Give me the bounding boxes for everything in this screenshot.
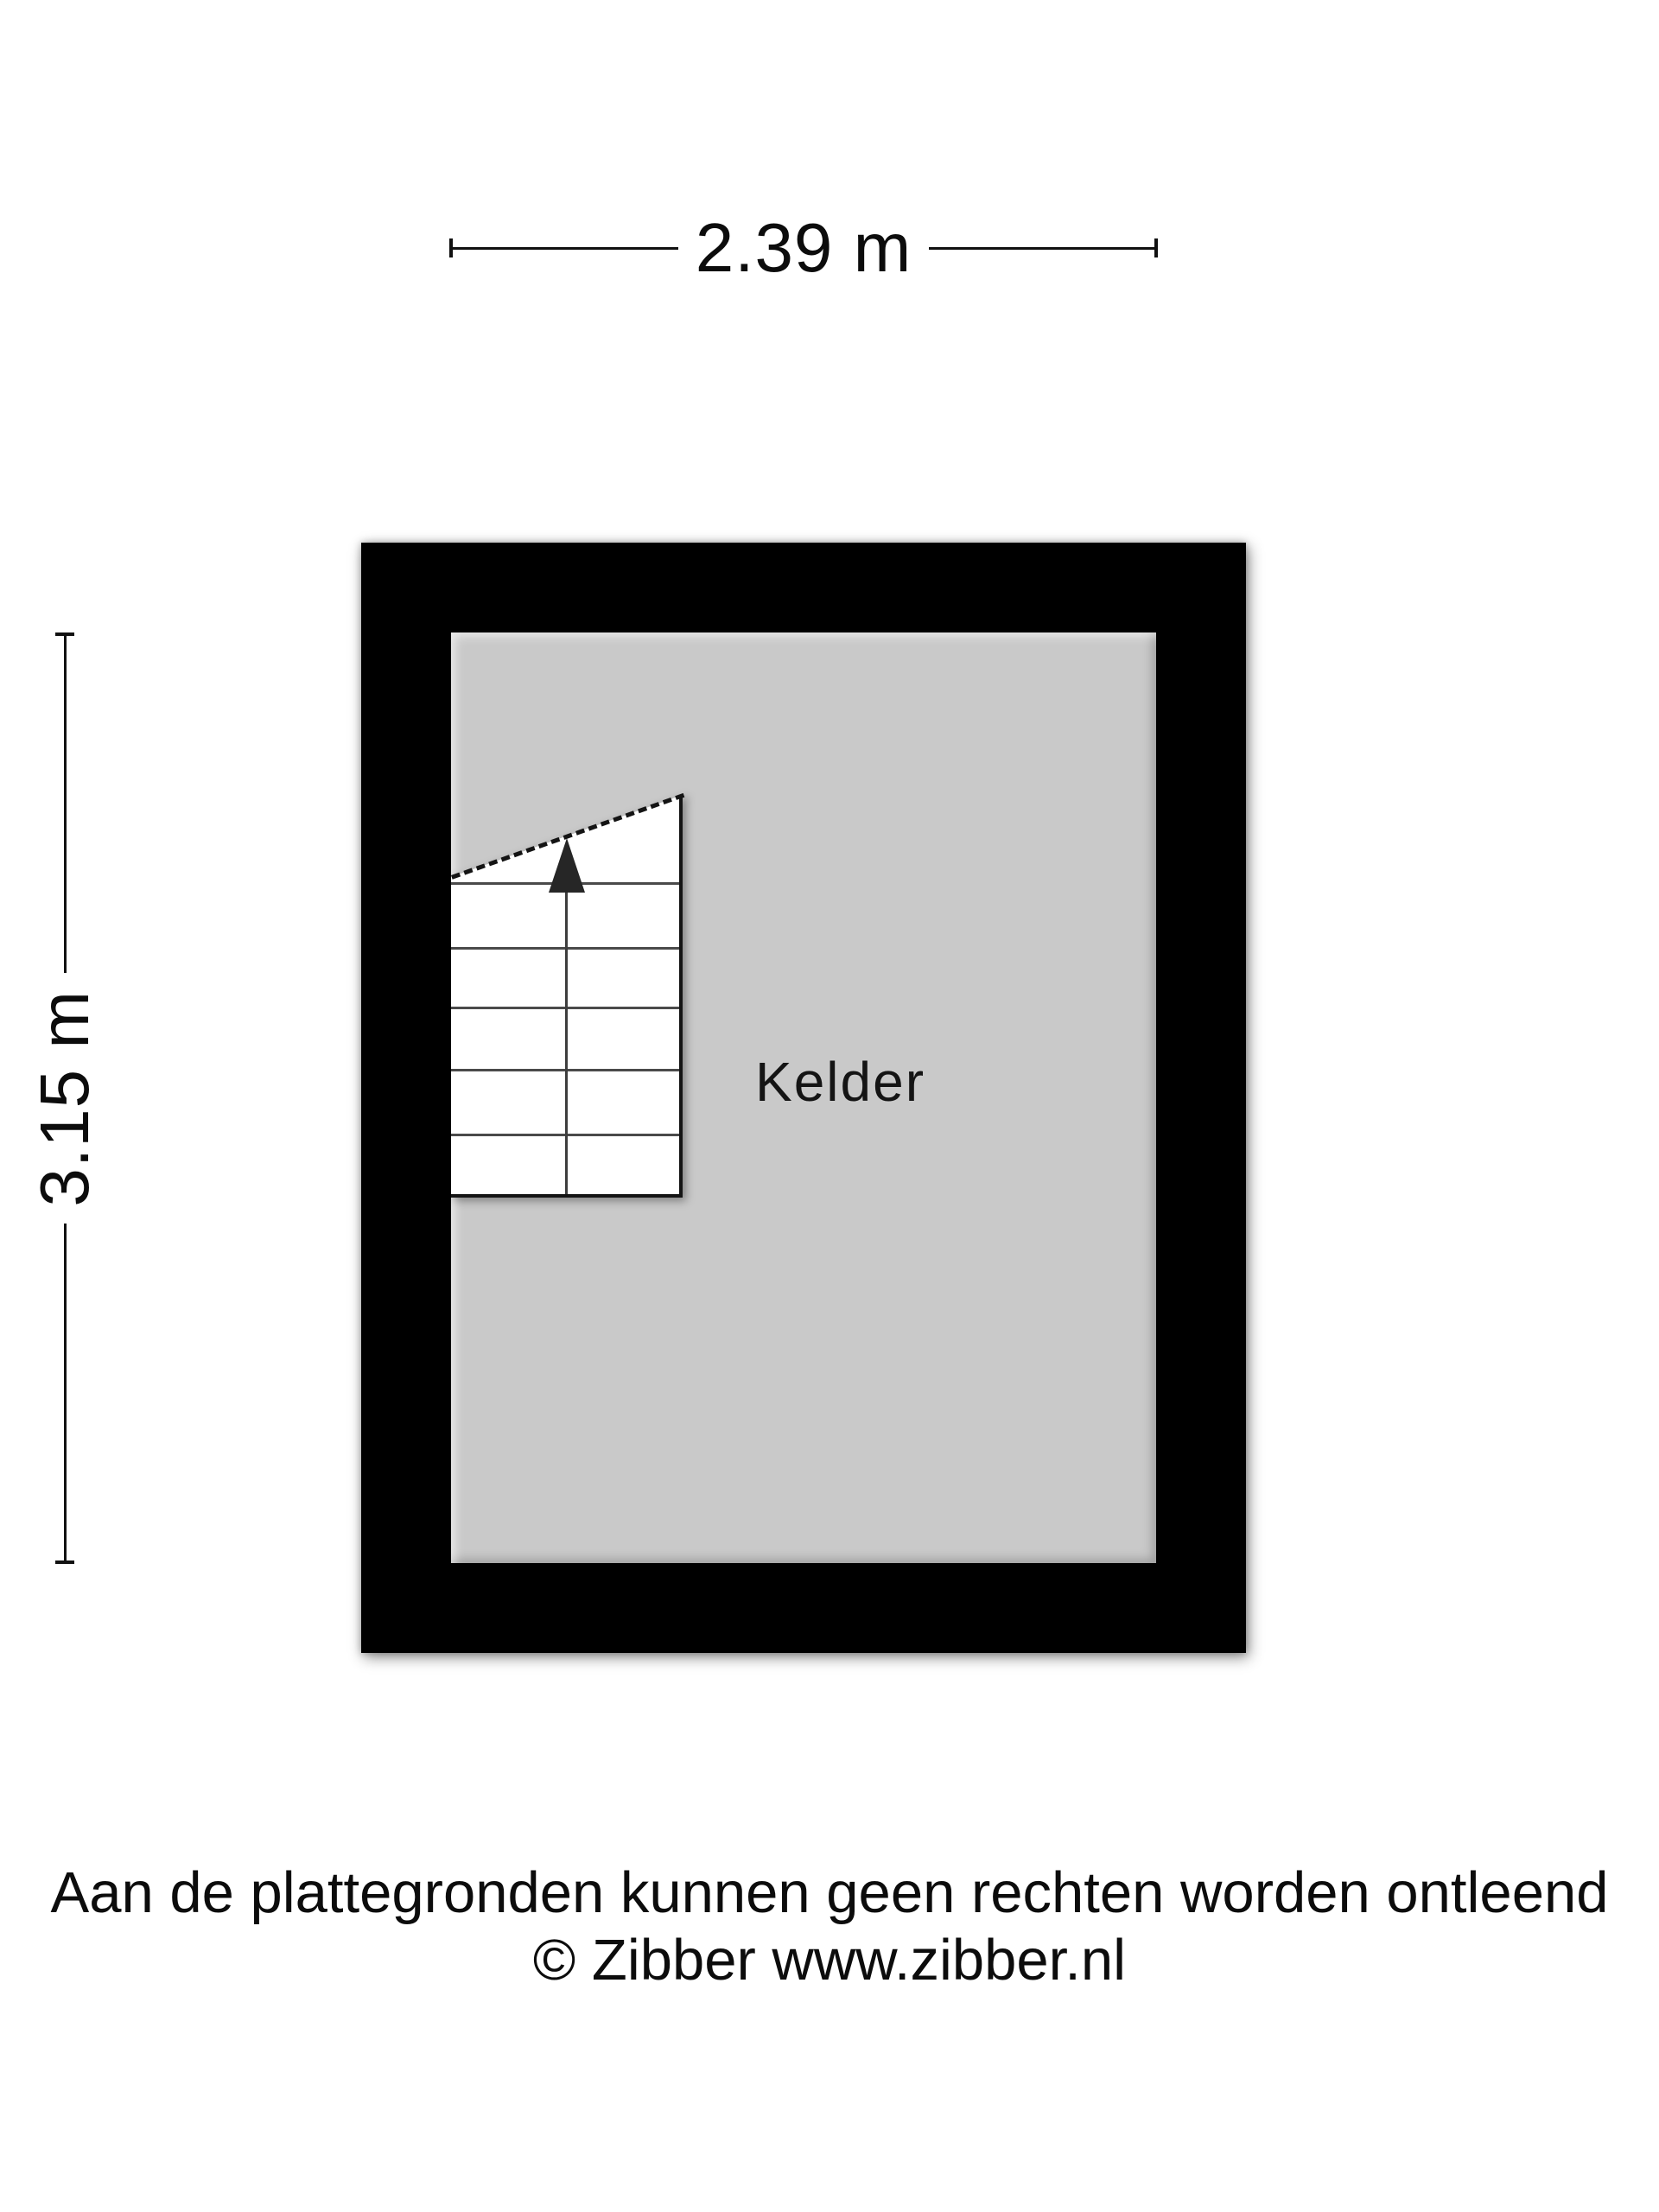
dimension-width: 2.39 m <box>449 217 1158 279</box>
dimension-height-label: 3.15 m <box>34 973 96 1224</box>
dimension-line-segment <box>64 636 67 973</box>
floorplan-canvas: 2.39 m 3.15 m <box>0 0 1659 2212</box>
stairs-up-arrow-icon <box>549 838 585 893</box>
copyright-text: © Zibber www.zibber.nl <box>0 1927 1659 1994</box>
footer: Aan de plattegronden kunnen geen rechten… <box>0 1859 1659 1994</box>
basement-outer-walls: Kelder <box>361 543 1246 1653</box>
dimension-line-segment <box>64 1224 67 1560</box>
basement-floor: Kelder <box>451 632 1156 1563</box>
dimension-line-segment <box>929 247 1154 250</box>
staircase-shadow-wrap <box>451 795 683 1198</box>
room-label: Kelder <box>755 1053 925 1110</box>
dimension-tick-bottom <box>55 1560 74 1564</box>
dimension-height: 3.15 m <box>34 632 96 1564</box>
dimension-line-segment <box>453 247 678 250</box>
dimension-tick-right <box>1154 238 1158 257</box>
dimension-width-label: 2.39 m <box>678 217 930 279</box>
disclaimer-text: Aan de plattegronden kunnen geen rechten… <box>0 1859 1659 1927</box>
staircase <box>451 795 683 1198</box>
stair-center-line <box>565 882 568 1198</box>
stair-bottom-border <box>451 1194 683 1198</box>
stair-right-border <box>679 795 683 1198</box>
